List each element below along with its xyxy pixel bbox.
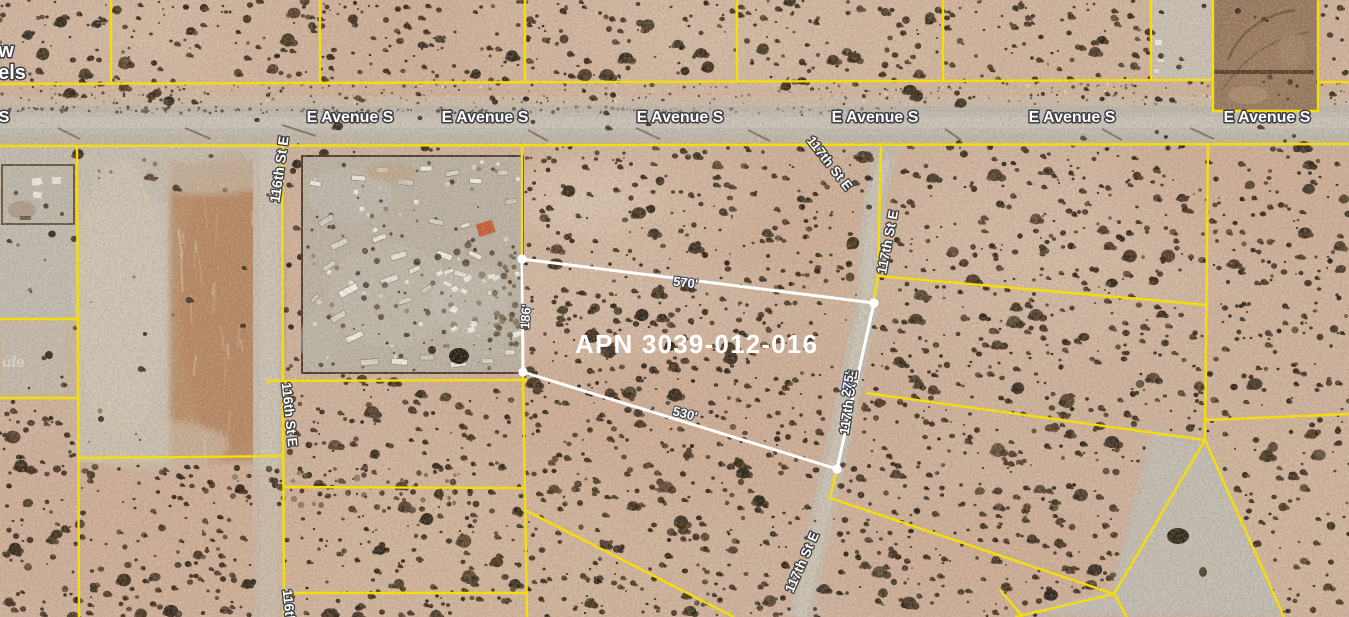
svg-text:E Avenue S: E Avenue S [307, 109, 394, 126]
svg-text:w: w [0, 40, 14, 62]
svg-text:E Avenue S: E Avenue S [637, 109, 724, 126]
svg-text:E Avenue S: E Avenue S [442, 109, 529, 126]
svg-text:els: els [0, 62, 26, 84]
svg-text:570': 570' [672, 274, 698, 292]
svg-text:186': 186' [517, 304, 534, 330]
svg-text:APN 3039-012-016: APN 3039-012-016 [575, 329, 818, 359]
svg-text:E Avenue S: E Avenue S [1224, 109, 1311, 126]
svg-text:E Avenue S: E Avenue S [1029, 109, 1116, 126]
svg-text:E Avenue S: E Avenue S [832, 109, 919, 126]
svg-text:E Avenue S: E Avenue S [0, 109, 10, 126]
